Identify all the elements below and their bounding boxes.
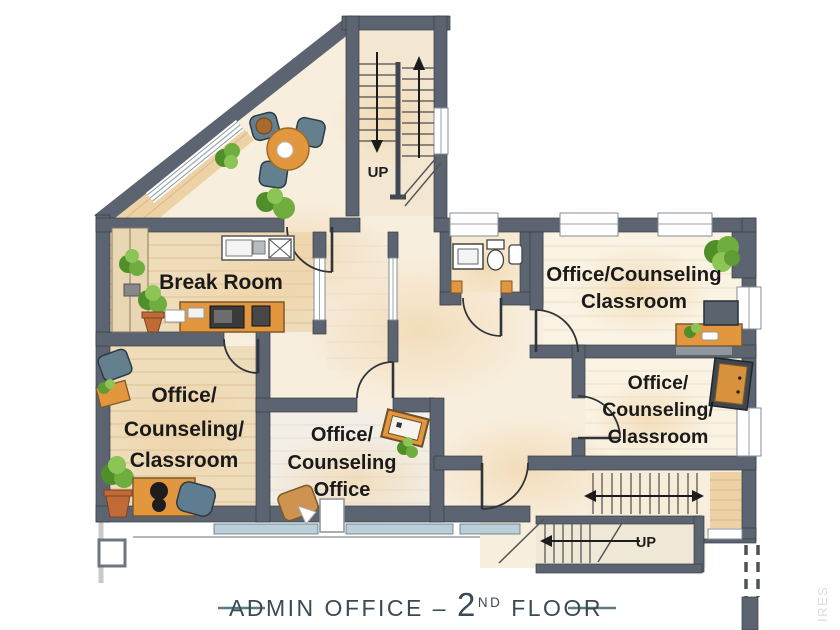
title-floor-word: FLOOR <box>511 595 603 621</box>
east-room-label-line1: Office/ <box>628 372 689 394</box>
stairwell-window <box>434 108 448 154</box>
south-stairs-up-label: UP <box>636 535 656 551</box>
kitchen-counter <box>222 236 294 260</box>
title-block: ADMIN OFFICE – 2ND FLOOR <box>218 586 616 623</box>
watermark: IRES <box>815 586 830 622</box>
middle-office-label-line2: Counseling <box>288 452 397 474</box>
north-window-1 <box>560 213 618 236</box>
north-window-2 <box>658 213 712 236</box>
north-window-bathroom <box>450 213 498 236</box>
break-room-label: Break Room <box>159 271 283 294</box>
future-wall-dashed <box>746 545 758 597</box>
floor-plan: UP UP <box>0 0 840 630</box>
page-title: ADMIN OFFICE – 2ND FLOOR <box>229 586 603 623</box>
island-counter <box>180 302 284 332</box>
future-wall-stub <box>742 597 758 630</box>
title-floor-number: 2 <box>457 586 478 623</box>
title-main: ADMIN OFFICE <box>229 595 424 621</box>
west-room-label-line2: Counseling/ <box>124 418 244 441</box>
south-exit-door-leaf <box>320 499 344 532</box>
middle-office-label-line3: Office <box>314 479 371 501</box>
middle-office-label-line1: Office/ <box>311 424 374 446</box>
se-window <box>708 529 742 539</box>
east-window-2 <box>737 408 761 456</box>
title-floor-ordinal: ND <box>478 595 503 610</box>
south-glass-windows <box>214 524 520 534</box>
east-room-furniture <box>709 358 753 410</box>
north-stairs-up-label: UP <box>368 164 389 181</box>
east-room-label-line3: Classroom <box>608 426 709 448</box>
monitor <box>704 301 738 325</box>
ne-room-label-line2: Classroom <box>581 290 687 313</box>
east-window-1 <box>737 287 761 329</box>
south-enclosure-floor <box>536 524 694 564</box>
east-room-label-line2: Counseling/ <box>602 399 714 421</box>
bathroom-cabinet <box>509 245 522 264</box>
floor-plan-page: UP UP <box>0 0 840 630</box>
desk-shadow <box>676 346 732 355</box>
west-room-label-line3: Classroom <box>130 449 239 472</box>
title-separator: – <box>433 595 448 621</box>
west-room-label-line1: Office/ <box>151 384 217 407</box>
toilet <box>487 240 504 270</box>
ne-room-label-line1: Office/Counseling <box>546 263 721 286</box>
exterior-column <box>99 540 125 566</box>
